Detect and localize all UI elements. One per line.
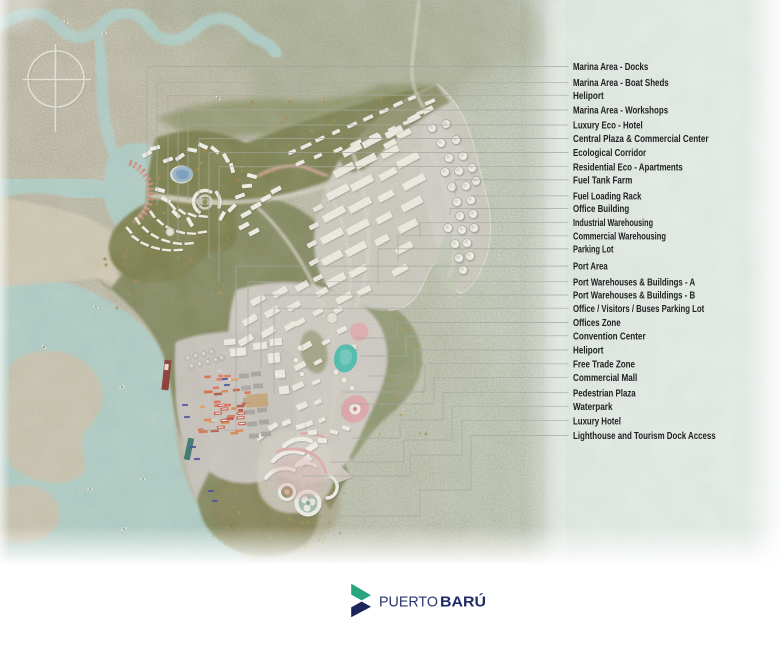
svg-text:Ecological Corridor: Ecological Corridor [573,148,646,159]
svg-text:Luxury Hotel: Luxury Hotel [573,416,621,427]
svg-text:Lighthouse and Tourism Dock Ac: Lighthouse and Tourism Dock Access [573,431,716,442]
svg-text:Office Building: Office Building [573,204,629,215]
svg-text:Heliport: Heliport [573,346,604,357]
svg-text:Residential Eco - Apartments: Residential Eco - Apartments [573,162,683,173]
svg-text:Fuel Tank Farm: Fuel Tank Farm [573,176,632,187]
svg-text:PUERTO: PUERTO [379,594,438,611]
svg-text:Marina Area - Docks: Marina Area - Docks [573,62,649,73]
svg-text:Port Warehouses & Buildings -: Port Warehouses & Buildings - A [573,277,695,288]
svg-text:Commercial Mall: Commercial Mall [573,373,637,384]
svg-text:Marina Area - Boat Sheds: Marina Area - Boat Sheds [573,78,669,89]
svg-text:Offices Zone: Offices Zone [573,318,621,329]
svg-text:Convention Center: Convention Center [573,331,646,342]
svg-text:Port Warehouses & Buildings -: Port Warehouses & Buildings - B [573,291,695,302]
svg-text:Office / Visitors / Buses Park: Office / Visitors / Buses Parking Lot [573,304,705,315]
svg-text:Commercial Warehousing: Commercial Warehousing [573,231,666,242]
svg-text:Parking Lot: Parking Lot [573,245,614,256]
svg-text:Heliport: Heliport [573,91,604,102]
svg-text:Waterpark: Waterpark [573,402,613,413]
svg-text:Luxury Eco - Hotel: Luxury Eco - Hotel [573,121,643,132]
svg-text:Central Plaza & Commercial Cen: Central Plaza & Commercial Center [573,134,709,145]
svg-text:Port Area: Port Area [573,262,608,273]
svg-text:Free Trade Zone: Free Trade Zone [573,359,635,370]
svg-text:Pedestrian Plaza: Pedestrian Plaza [573,388,636,399]
svg-text:Marina Area - Workshops: Marina Area - Workshops [573,106,668,117]
svg-text:BARÚ: BARÚ [440,593,486,611]
svg-text:Fuel Loading Rack: Fuel Loading Rack [573,192,642,203]
svg-text:Industrial Warehousing: Industrial Warehousing [573,218,653,229]
